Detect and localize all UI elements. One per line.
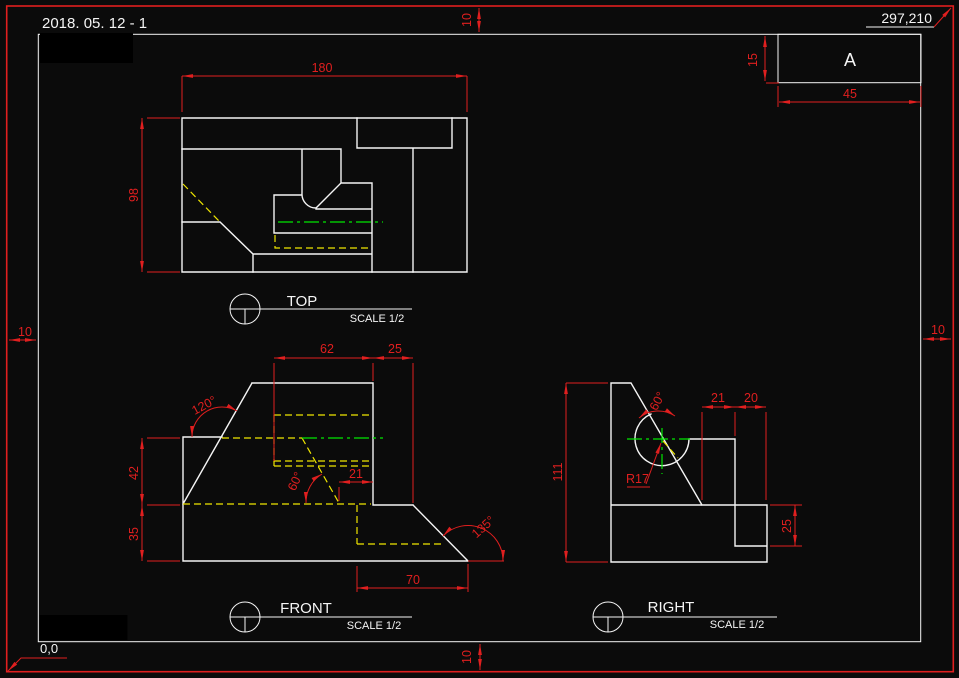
right-view-hidden-line bbox=[663, 441, 678, 458]
right-angle-60-text: 60° bbox=[647, 389, 668, 412]
margin-left-text: 10 bbox=[18, 325, 32, 339]
sheet-extents-leader-arrow bbox=[934, 8, 951, 27]
inner-white-border bbox=[38, 34, 920, 641]
front-view: 62 25 42 35 21 70 120° 60° 135° FRONT SC… bbox=[127, 342, 504, 632]
margin-top-text: 10 bbox=[460, 13, 474, 27]
top-dim-180-ext bbox=[182, 76, 467, 112]
front-angle-60-arc bbox=[306, 474, 322, 503]
top-view: 180 98 TOP SCALE 1/2 bbox=[127, 61, 467, 325]
front-dim-25-text: 25 bbox=[388, 342, 402, 356]
top-view-edges bbox=[182, 118, 452, 272]
front-angle-60-text: 60° bbox=[285, 470, 306, 493]
margin-right-text: 10 bbox=[931, 323, 945, 337]
top-view-outline bbox=[182, 118, 467, 272]
front-view-outline bbox=[183, 383, 468, 561]
right-dim-20-text: 20 bbox=[744, 391, 758, 405]
front-view-label: FRONT bbox=[280, 600, 332, 617]
outer-red-border bbox=[7, 6, 954, 672]
right-dim-21-text: 21 bbox=[711, 391, 725, 405]
top-view-scale: SCALE 1/2 bbox=[350, 313, 404, 325]
right-view: 111 21 20 25 R17 60° RIGHT SCALE 1/2 bbox=[551, 383, 802, 632]
redaction-box-bottom-left bbox=[40, 615, 128, 640]
right-r17-text: R17 bbox=[626, 472, 649, 486]
date-title: 2018. 05. 12 - 1 bbox=[42, 15, 147, 32]
top-view-hidden-lines bbox=[183, 184, 372, 248]
top-dim-180-text: 180 bbox=[312, 61, 333, 75]
title-block-dim-45-text: 45 bbox=[843, 87, 857, 101]
origin-leader-arrow bbox=[8, 658, 67, 671]
front-view-scale: SCALE 1/2 bbox=[347, 620, 401, 632]
front-angle-120-text: 120° bbox=[189, 393, 218, 418]
right-view-label: RIGHT bbox=[648, 599, 695, 616]
top-dim-98-text: 98 bbox=[127, 188, 141, 202]
front-dim-62-text: 62 bbox=[320, 342, 334, 356]
redaction-box-top-left bbox=[40, 33, 133, 63]
top-dim-98-ext bbox=[147, 118, 180, 272]
right-view-scale: SCALE 1/2 bbox=[710, 619, 764, 631]
front-dim-35-text: 35 bbox=[127, 527, 141, 541]
margin-bottom-text: 10 bbox=[460, 650, 474, 664]
origin-label: 0,0 bbox=[40, 641, 58, 656]
right-dim-111-text: 111 bbox=[551, 462, 565, 481]
sheet-extents-label: 297,210 bbox=[881, 10, 932, 26]
front-dim-21-text: 21 bbox=[349, 467, 363, 481]
drawing-canvas[interactable]: 2018. 05. 12 - 1 297,210 0,0 A 15 45 10 … bbox=[0, 0, 959, 678]
right-dim-25-text: 25 bbox=[780, 519, 794, 533]
front-dim-42-text: 42 bbox=[127, 466, 141, 480]
zone-label: A bbox=[844, 50, 856, 70]
title-block-dim-15-text: 15 bbox=[746, 53, 760, 67]
cad-sheet: 2018. 05. 12 - 1 297,210 0,0 A 15 45 10 … bbox=[0, 0, 959, 678]
top-view-label: TOP bbox=[287, 293, 318, 310]
title-block: A 15 45 bbox=[746, 34, 921, 107]
front-view-hidden-lines bbox=[183, 415, 442, 544]
front-dim-ext-lines bbox=[147, 363, 504, 592]
front-dim-70-text: 70 bbox=[406, 573, 420, 587]
margin-markers: 10 10 10 10 bbox=[9, 8, 951, 670]
